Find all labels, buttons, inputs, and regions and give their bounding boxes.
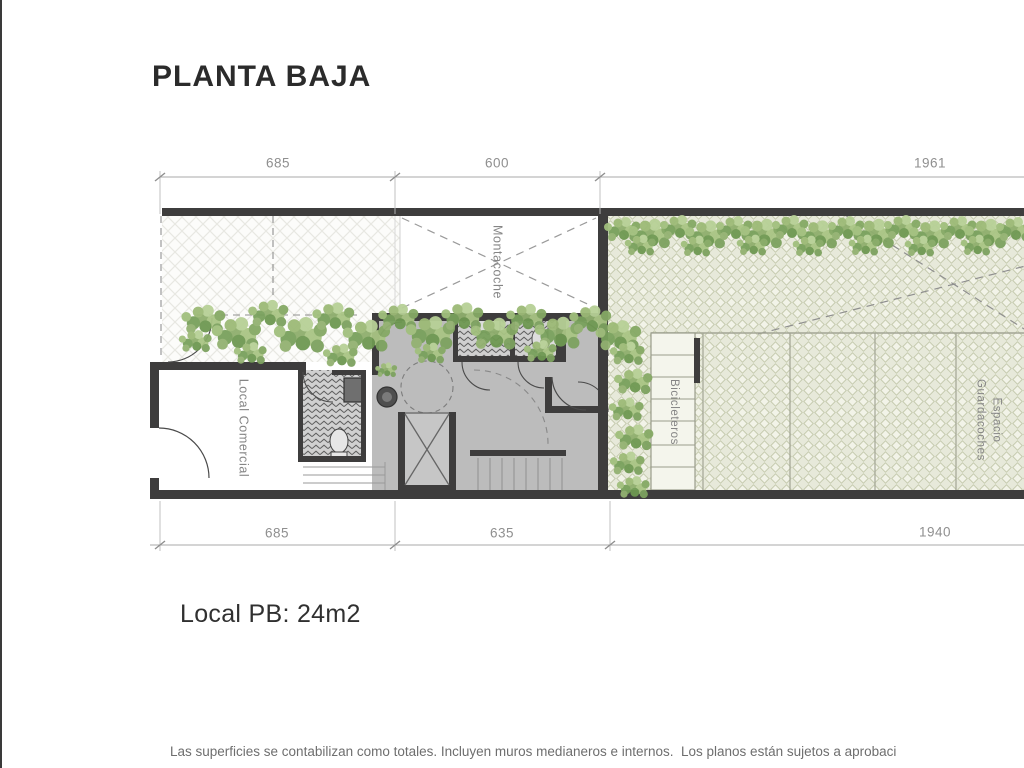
dimension-top-685: 685 <box>266 156 290 171</box>
room-label-espacio-guardacoches: Espacio Guardacoches <box>972 379 1003 461</box>
room-label-montacoche: Montacoche <box>489 225 506 299</box>
local-bathroom <box>298 370 385 490</box>
page-title: PLANTA BAJA <box>152 60 371 94</box>
floor-plan-drawing <box>0 0 1024 768</box>
dimension-top-1961: 1961 <box>914 156 946 171</box>
elevator-shaft <box>398 412 456 492</box>
area-note: Local PB: 24m2 <box>180 600 361 629</box>
dimension-top-600: 600 <box>485 156 509 171</box>
dimension-bottom-685: 685 <box>265 526 289 541</box>
room-label-local-comercial: Local Comercial <box>235 379 252 478</box>
room-label-bicicleteros: Bicicleteros <box>665 379 681 445</box>
dimension-bottom-635: 635 <box>490 526 514 541</box>
footer-disclaimer: Las superficies se contabilizan como tot… <box>170 744 1024 759</box>
screen-edge-line <box>0 0 2 768</box>
local-entry-door-arc <box>159 428 209 478</box>
dimension-bottom-1940: 1940 <box>919 525 951 540</box>
